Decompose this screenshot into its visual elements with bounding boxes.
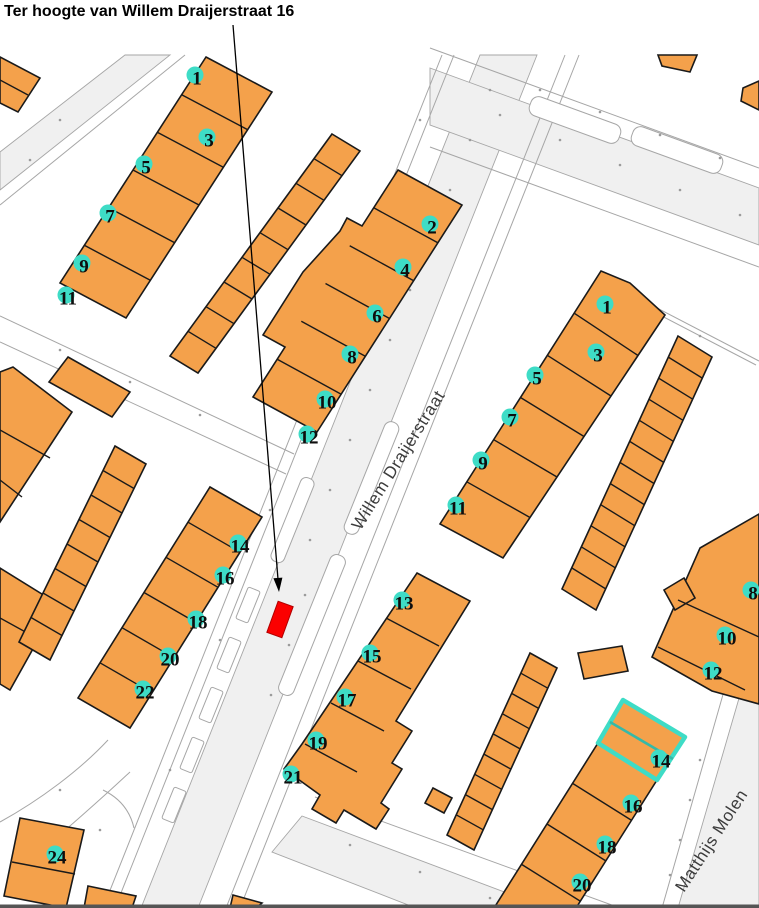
house-number-text: 1 xyxy=(602,298,612,319)
house-number: 20 xyxy=(160,648,180,671)
house-number: 14 xyxy=(651,750,672,773)
house-number: 16 xyxy=(623,795,643,818)
house-number-text: 12 xyxy=(300,428,319,449)
bottom-edge-bar xyxy=(0,905,759,908)
house-number: 11 xyxy=(58,287,77,310)
house-number-text: 7 xyxy=(105,207,115,228)
house-number-text: 20 xyxy=(161,650,180,671)
house-number-text: 6 xyxy=(372,307,382,328)
house-number: 12 xyxy=(299,426,319,449)
house-number-text: 9 xyxy=(478,454,488,475)
building-nw-corner xyxy=(0,57,40,112)
house-number: 17 xyxy=(337,689,358,712)
house-number-text: 3 xyxy=(204,131,214,152)
building-w-edge-1 xyxy=(0,367,72,522)
house-number-text: 10 xyxy=(318,393,337,414)
house-number: 13 xyxy=(394,592,414,615)
house-number-text: 7 xyxy=(507,411,517,432)
house-number-text: 4 xyxy=(400,261,410,282)
house-number-text: 14 xyxy=(231,537,251,558)
house-number-text: 1 xyxy=(192,69,202,90)
house-number: 18 xyxy=(188,611,208,634)
house-number: 11 xyxy=(448,497,467,520)
house-number: 24 xyxy=(47,846,68,869)
house-number-text: 5 xyxy=(141,158,151,179)
house-number-text: 18 xyxy=(189,613,208,634)
building-ne-fragment-2 xyxy=(741,81,759,110)
house-number-text: 22 xyxy=(136,683,155,704)
house-number-text: 15 xyxy=(363,647,382,668)
house-number-text: 24 xyxy=(48,848,68,869)
building-ne-fragment-1 xyxy=(658,55,697,72)
house-number-text: 16 xyxy=(624,797,643,818)
house-number-text: 17 xyxy=(338,691,358,712)
house-number-text: 11 xyxy=(59,289,77,310)
house-number-text: 5 xyxy=(532,369,542,390)
house-number-text: 13 xyxy=(395,594,414,615)
house-number-text: 12 xyxy=(704,664,723,685)
annotation-title: Ter hoogte van Willem Draijerstraat 16 xyxy=(4,3,294,21)
house-number-text: 8 xyxy=(748,584,758,605)
building-garages-s xyxy=(447,653,557,850)
house-number: 18 xyxy=(597,836,617,859)
house-number-text: 14 xyxy=(652,752,672,773)
house-number: 19 xyxy=(308,732,328,755)
house-number: 21 xyxy=(283,766,303,789)
house-number-text: 10 xyxy=(718,629,737,650)
house-number-text: 8 xyxy=(347,348,357,369)
house-number: 10 xyxy=(717,627,737,650)
house-number: 20 xyxy=(572,874,592,897)
house-number: 22 xyxy=(135,681,155,704)
house-number-text: 16 xyxy=(216,569,235,590)
house-number-text: 11 xyxy=(449,499,467,520)
building-garages-s-notch xyxy=(425,788,452,813)
map-figure: Ter hoogte van Willem Draijerstraat 16 xyxy=(0,0,759,908)
house-number-text: 2 xyxy=(427,218,437,239)
house-number-text: 19 xyxy=(309,734,328,755)
house-number: 14 xyxy=(230,535,251,558)
house-number: 16 xyxy=(215,567,235,590)
house-number: 15 xyxy=(362,645,382,668)
house-number-text: 20 xyxy=(573,876,592,897)
house-number-text: 18 xyxy=(598,838,617,859)
house-number: 12 xyxy=(703,662,723,685)
map-canvas: Willem Draijerstraat Matthijs Molen 1357… xyxy=(0,0,759,908)
house-number-text: 3 xyxy=(593,346,603,367)
house-number-text: 21 xyxy=(284,768,303,789)
house-number: 10 xyxy=(317,391,337,414)
house-number-text: 9 xyxy=(79,257,89,278)
building-small-south xyxy=(578,646,628,679)
